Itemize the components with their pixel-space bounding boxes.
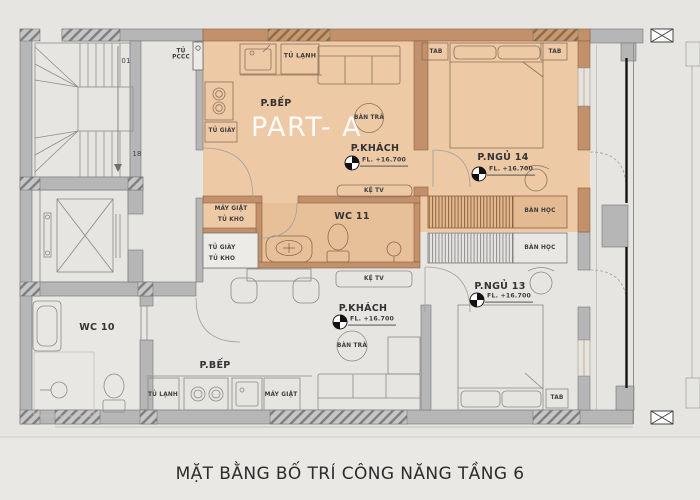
wc10-floor — [32, 296, 140, 410]
living-a-level: FL. +16.700 — [360, 158, 408, 167]
wc10-label: WC 10 — [79, 323, 114, 333]
fridge-a-label: TỦ LẠNH — [284, 54, 316, 61]
storage-a-label: TỦ KHO — [218, 217, 244, 223]
living-b-level: FL. +16.700 — [348, 317, 396, 326]
nightstand-a-left-label: TAB — [429, 49, 442, 55]
shoe-cabinet-b-label: TỦ GIÀY — [208, 245, 235, 251]
drawing-title: MẶT BẰNG BỐ TRÍ CÔNG NĂNG TẦNG 6 — [0, 464, 700, 484]
wc11-label: WC 11 — [334, 212, 369, 222]
nightstand-a-right-label: TAB — [548, 49, 561, 55]
tv-shelf-b-label: KỆ TV — [364, 276, 384, 282]
bedroom14-level: FL. +16.700 — [487, 167, 535, 176]
part-a-watermark: PART- A — [251, 112, 362, 143]
bedroom13-level: FL. +16.700 — [485, 294, 533, 303]
bedroom14-label: P.NGỦ 14 — [477, 153, 528, 163]
living-b-label: P.KHÁCH — [339, 304, 388, 314]
bedroom13-label: P.NGỦ 13 — [474, 282, 525, 292]
fire-cabinet-label: TỦ PCCC — [171, 49, 191, 62]
floor-plan-page: TỦ PCCC 01 18 WC 10 TỦ LẠNH P.BẾP TỦ GIÀ… — [0, 0, 700, 500]
tv-shelf-a-label: KỆ TV — [364, 188, 384, 194]
kitchen-a-label: P.BẾP — [260, 99, 291, 109]
stair-last-step-label: 18 — [132, 151, 141, 159]
storage-b-label: TỦ KHO — [209, 256, 235, 262]
desk-a-label: BÀN HỌC — [524, 208, 555, 214]
shoe-cabinet-a-label: TỦ GIÀY — [208, 128, 235, 134]
living-a-label: P.KHÁCH — [351, 144, 400, 154]
desk-b-label: BÀN HỌC — [524, 245, 555, 251]
fire-cabinet — [193, 42, 203, 70]
stair-first-step-label: 01 — [121, 58, 130, 66]
tea-table-b-label: BÀN TRÀ — [337, 343, 367, 349]
washing-machine-b-label: MÁY GIẶT — [265, 392, 298, 398]
washing-machine-a-label: MÁY GIẶT — [215, 206, 248, 212]
fridge-b-label: TỦ LẠNH — [148, 392, 178, 398]
kitchen-b-label: P.BẾP — [199, 361, 230, 371]
floor-plan-drawing — [0, 0, 700, 500]
nightstand-b-label: TAB — [550, 395, 563, 401]
